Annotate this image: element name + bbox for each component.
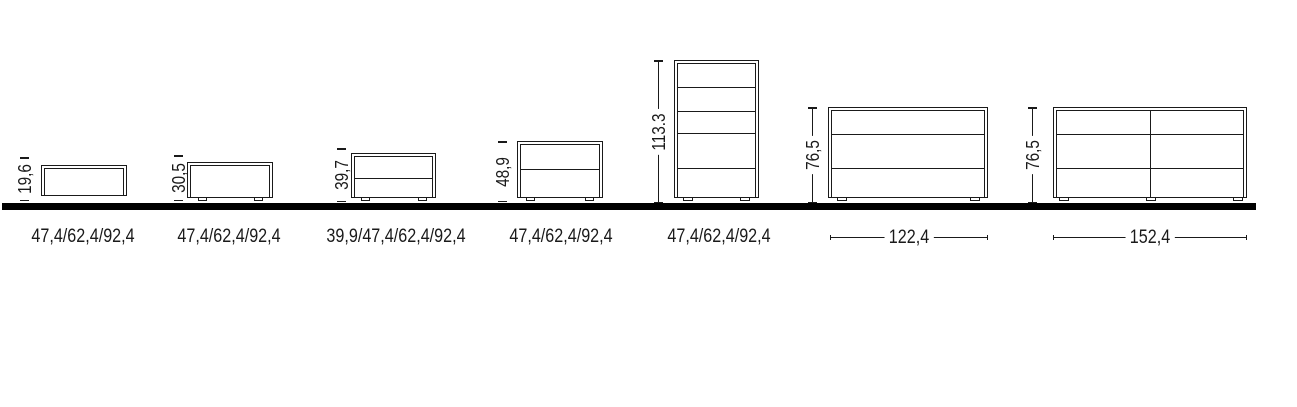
center-divider [1150,111,1151,197]
dimension-tick [174,200,183,202]
drawer-divider [521,169,599,170]
drawer-divider [678,168,755,169]
furniture-foot [1233,197,1243,201]
dimension-tick [830,235,831,240]
furniture-foot [526,197,535,201]
ground-line [2,203,1256,210]
furniture-outline-4 [517,141,603,198]
width-label-6: 122,4 [885,227,934,249]
width-label-2: 47,4/62,4/92,4 [177,226,280,248]
furniture-foot [1146,197,1156,201]
furniture-dimension-diagram: 19,6 47,4/62,4/92,4 30,5 47,4/62,4/92,4 … [0,0,1297,407]
dimension-tick [20,157,29,159]
drawer-divider [832,134,984,135]
dimension-tick [1053,235,1054,240]
furniture-foot [837,197,847,201]
height-label-2: 30,5 [169,159,189,197]
furniture-outline-1 [41,165,127,196]
panel-frame [190,165,270,197]
dimension-tick [1246,235,1247,240]
height-dimension-7: 76,5 [1028,107,1037,203]
dimension-tick [20,200,29,202]
dimension-tick [987,235,988,240]
height-label-3: 39,7 [332,156,352,194]
furniture-foot [1059,197,1069,201]
width-label-5: 47,4/62,4/92,4 [667,226,770,248]
dimension-tick [808,107,817,109]
dimension-tick [1028,107,1037,109]
height-label-5: 113.3 [649,109,669,155]
furniture-foot [254,197,263,201]
furniture-foot [585,197,594,201]
drawer-divider [355,178,432,179]
furniture-outline-2 [187,162,273,198]
width-dimension-7: 152,4 [1053,230,1247,245]
dimension-tick [174,155,183,157]
drawer-divider [678,87,755,88]
width-label-1: 47,4/62,4/92,4 [31,226,134,248]
drawer-divider [832,168,984,169]
drawer-divider [678,133,755,134]
furniture-outline-6 [828,107,988,198]
panel-frame [44,168,124,195]
height-dimension-5: 113.3 [654,60,663,203]
furniture-outline-7 [1053,107,1247,198]
height-dimension-4: 48,9 [498,141,507,202]
height-label-4: 48,9 [493,152,513,190]
height-label-6: 76,5 [803,136,823,174]
height-label-1: 19,6 [15,160,35,198]
height-dimension-3: 39,7 [337,148,346,202]
dimension-tick [654,60,663,62]
dimension-tick [337,148,346,150]
furniture-foot [740,197,750,201]
furniture-outline-5 [674,60,759,198]
dimension-tick [498,201,507,203]
width-dimension-6: 122,4 [830,230,988,245]
panel-frame [354,156,433,197]
width-label-4: 47,4/62,4/92,4 [509,226,612,248]
furniture-foot [970,197,980,201]
furniture-foot [198,197,207,201]
width-label-7: 152,4 [1126,227,1175,249]
furniture-outline-3 [351,153,436,198]
height-label-7: 76,5 [1023,136,1043,174]
drawer-divider [678,111,755,112]
panel-frame [677,63,756,197]
panel-frame [831,110,985,197]
dimension-tick [498,141,507,143]
furniture-foot [683,197,693,201]
height-dimension-2: 30,5 [174,155,183,201]
dimension-tick [337,201,346,203]
height-dimension-1: 19,6 [20,157,29,201]
width-label-3: 39,9/47,4/62,4/92,4 [326,226,465,248]
height-dimension-6: 76,5 [808,107,817,203]
furniture-foot [361,197,370,201]
furniture-foot [418,197,427,201]
panel-frame [520,144,600,197]
